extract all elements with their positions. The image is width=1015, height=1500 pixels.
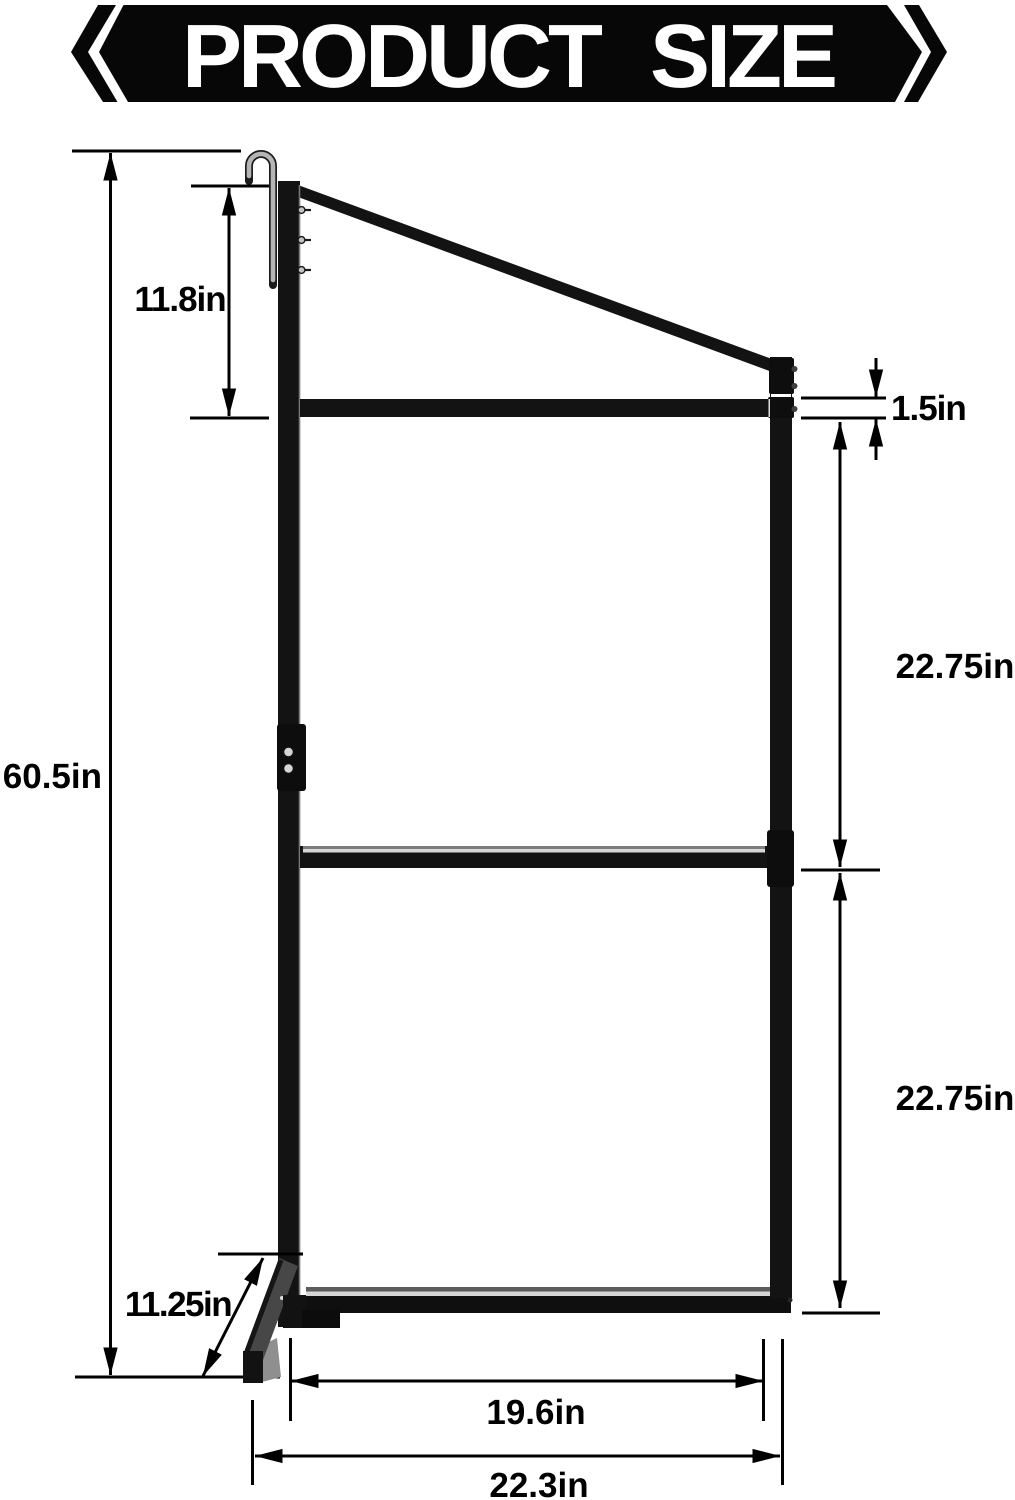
svg-text:19.6in: 19.6in xyxy=(486,1393,585,1432)
svg-text:22.3in: 22.3in xyxy=(489,1466,588,1500)
svg-text:PRODUCT SIZE: PRODUCT SIZE xyxy=(182,7,835,107)
svg-text:11.25in: 11.25in xyxy=(125,1285,231,1324)
svg-text:22.75in: 22.75in xyxy=(896,1079,1015,1118)
svg-text:22.75in: 22.75in xyxy=(896,647,1015,686)
svg-text:11.8in: 11.8in xyxy=(134,280,225,319)
svg-text:1.5in: 1.5in xyxy=(891,389,966,428)
svg-text:60.5in: 60.5in xyxy=(3,757,102,796)
